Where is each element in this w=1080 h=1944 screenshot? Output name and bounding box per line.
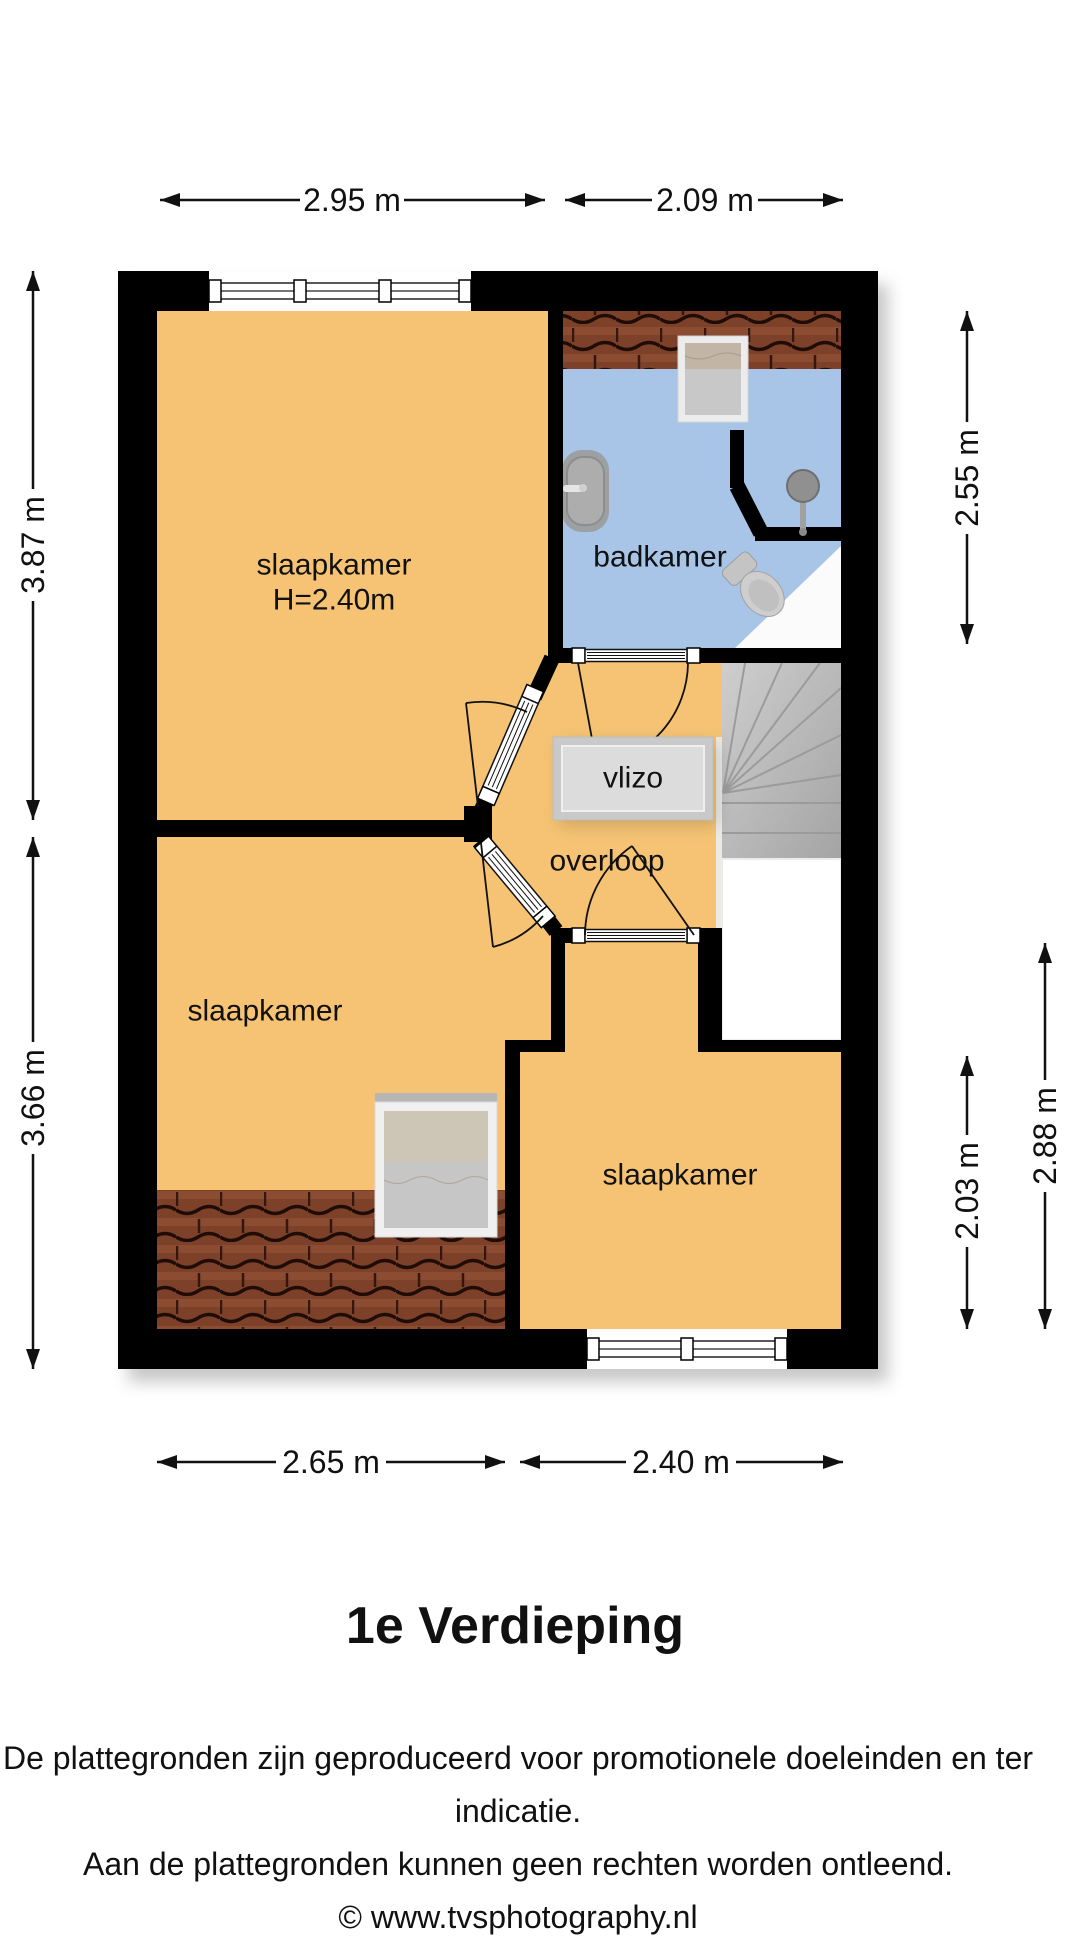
window-bottom (587, 1329, 787, 1369)
disclaimer-line-1: De plattegronden zijn geproduceerd voor … (0, 1732, 1036, 1838)
svg-text:2.95 m: 2.95 m (303, 182, 401, 218)
dimension-left-lower-height: 3.66 m (15, 837, 51, 1369)
label-loft-hatch: vlizo (603, 762, 663, 795)
dimension-right-inner-height: 2.03 m (949, 1056, 985, 1329)
svg-text:2.88 m: 2.88 m (1027, 1087, 1063, 1185)
disclaimer-line-2: Aan de plattegronden kunnen geen rechten… (0, 1838, 1036, 1891)
dimension-right-outer-height: 2.88 m (1027, 943, 1063, 1329)
dimension-left-upper-height: 3.87 m (15, 271, 51, 820)
disclaimer: De plattegronden zijn geproduceerd voor … (0, 1732, 1036, 1944)
label-ceiling-height: H=2.40m (273, 584, 396, 617)
dimension-top-right-width: 2.09 m (565, 182, 843, 218)
svg-text:2.65 m: 2.65 m (282, 1444, 380, 1480)
staircase (722, 663, 841, 859)
svg-text:3.87 m: 3.87 m (15, 496, 51, 594)
sink (562, 450, 609, 532)
svg-text:2.09 m: 2.09 m (656, 182, 754, 218)
copyright-line: © www.tvsphotography.nl (0, 1891, 1036, 1944)
svg-text:3.66 m: 3.66 m (15, 1049, 51, 1147)
stair-void (722, 859, 841, 1040)
skylight-bedroom (375, 1093, 497, 1237)
label-bedroom-top-left: slaapkamer (256, 549, 411, 582)
svg-text:2.03 m: 2.03 m (949, 1142, 985, 1240)
label-bathroom: badkamer (593, 541, 726, 574)
dimension-right-bathroom-height: 2.55 m (949, 311, 985, 644)
label-bedroom-bottom-right: slaapkamer (602, 1159, 757, 1192)
dimension-bottom-left-width: 2.65 m (157, 1444, 505, 1480)
label-bedroom-bottom-left: slaapkamer (187, 995, 342, 1028)
skylight-bathroom (678, 336, 748, 422)
svg-text:2.55 m: 2.55 m (949, 429, 985, 527)
plan-title: 1e Verdieping (0, 1596, 1030, 1656)
dimension-bottom-right-width: 2.40 m (520, 1444, 843, 1480)
svg-text:2.40 m: 2.40 m (632, 1444, 730, 1480)
label-landing: overloop (549, 845, 664, 878)
window-top (209, 271, 471, 311)
dimension-top-left-width: 2.95 m (160, 182, 545, 218)
